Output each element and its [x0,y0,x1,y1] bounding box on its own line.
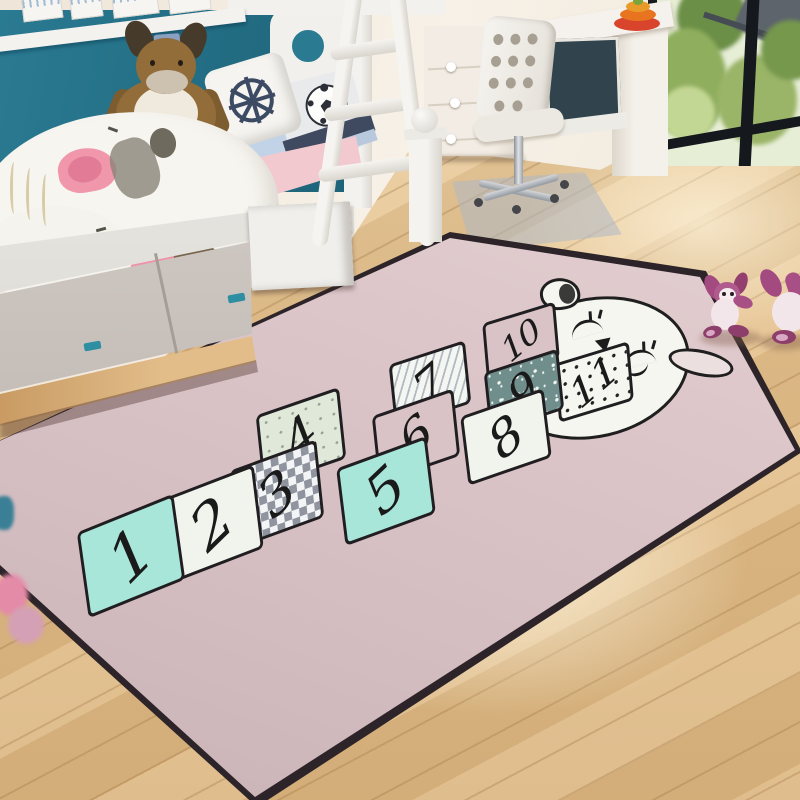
chair-hole [522,77,533,89]
hopscotch-cell-5: 5 [336,436,436,546]
donkey-eye [178,60,183,66]
ship-wheel-print [224,73,279,128]
chair-hole [488,77,499,89]
shelf-book [68,0,103,20]
duvet-print-squiggle [10,162,18,214]
chair-hole [490,55,501,67]
chair-hole [493,33,504,45]
shelf-book [110,0,159,19]
chair-caster [550,194,559,203]
donkey-muzzle [146,70,188,94]
chair-gas-lift [514,136,523,184]
bed-footboard [248,201,354,290]
chair-caster [560,180,569,189]
chair-hole [505,77,516,89]
chair-caster [474,198,483,207]
bunk-bed [0,0,470,440]
chair-hole [494,100,505,112]
duvet-print-squiggle [26,168,34,220]
headboard-circle [284,22,332,70]
duvet-print-squiggle [42,174,50,226]
hopscotch-cell-8: 8 [460,388,552,486]
chair-caster [512,205,521,214]
ear-fold [557,283,576,305]
chair-hole [525,55,536,67]
donkey-eye [150,60,155,66]
chair-hole [527,33,538,45]
hopscotch-cell-1: 1 [77,494,185,619]
chair-hole [510,33,521,45]
chair-hole [508,55,519,67]
shelf-book [21,0,64,22]
kids-room-photo: 10 11 9 8 7 6 5 4 3 2 1 [0,0,800,800]
chair-hole [512,100,523,112]
upper-bunk-rail [228,0,446,15]
